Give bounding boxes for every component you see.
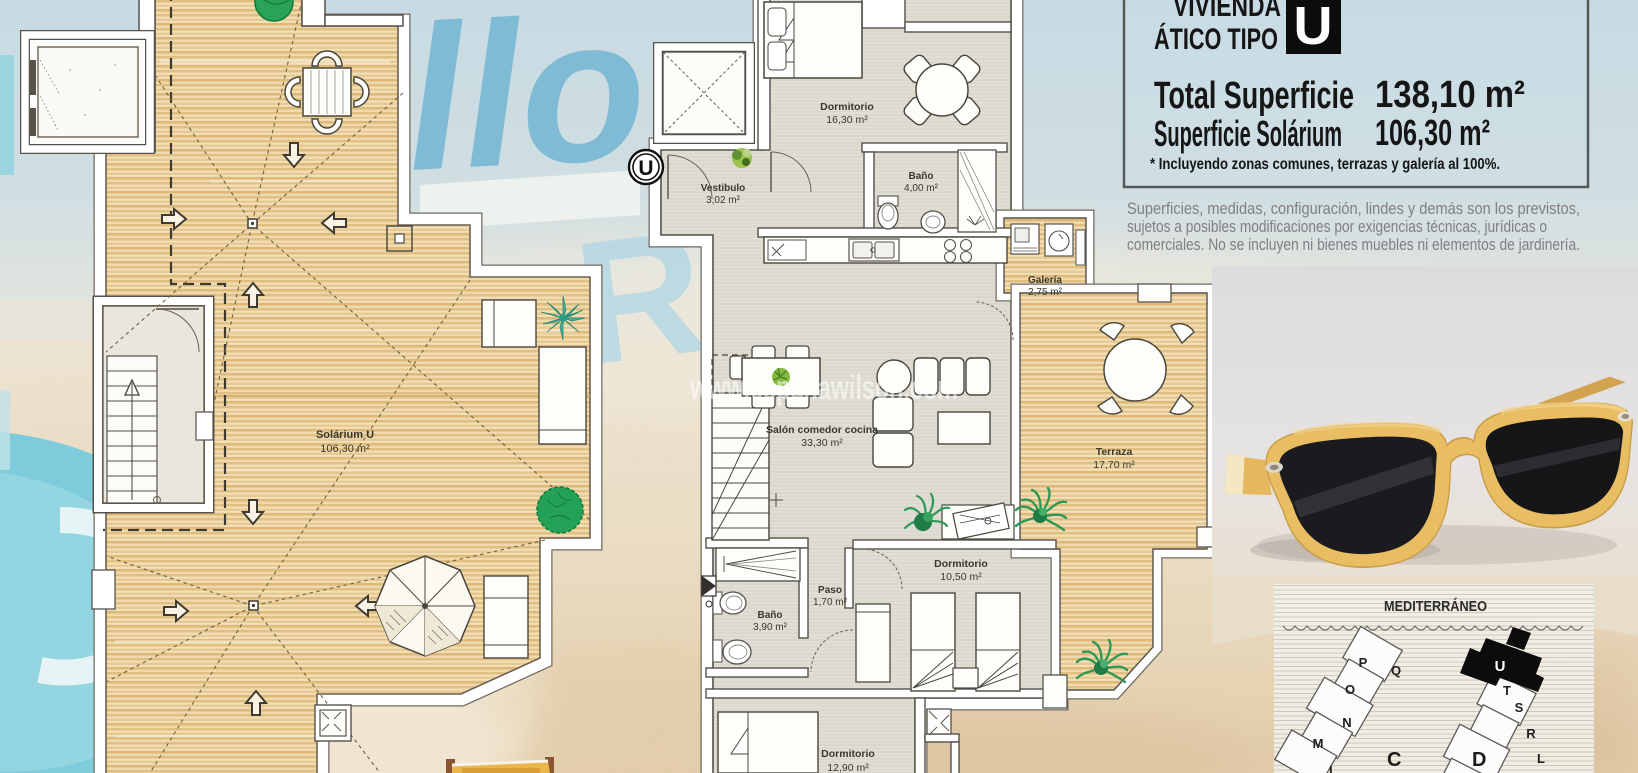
- svg-text:138,10 m²: 138,10 m²: [1375, 74, 1525, 116]
- svg-text:Salón comedor cocina: Salón comedor cocina: [766, 424, 878, 436]
- svg-text:T: T: [1503, 683, 1511, 698]
- svg-text:Vestibulo: Vestibulo: [701, 183, 745, 194]
- svg-text:Superficies, medidas, configur: Superficies, medidas, configuración, lin…: [1127, 200, 1580, 218]
- svg-text:S: S: [1515, 700, 1524, 715]
- svg-text:Baño: Baño: [758, 610, 783, 621]
- svg-text:Baño: Baño: [909, 171, 934, 182]
- svg-text:Q: Q: [1391, 663, 1401, 678]
- svg-text:N: N: [1342, 715, 1351, 730]
- svg-text:Galería: Galería: [1028, 275, 1062, 286]
- svg-text:Superficie Solárium: Superficie Solárium: [1154, 113, 1342, 154]
- svg-text:* Incluyendo zonas comunes, te: * Incluyendo zonas comunes, terrazas y g…: [1150, 156, 1500, 173]
- svg-text:17,70 m²: 17,70 m²: [1093, 459, 1135, 471]
- svg-text:P: P: [1359, 655, 1368, 670]
- svg-text:VIVIENDA: VIVIENDA: [1173, 0, 1281, 23]
- svg-text:L: L: [1537, 751, 1545, 766]
- svg-text:C: C: [1387, 749, 1401, 771]
- svg-text:1,70 m²: 1,70 m²: [813, 597, 848, 608]
- svg-text:2,75 m²: 2,75 m²: [1028, 287, 1063, 298]
- svg-text:M: M: [1313, 736, 1324, 751]
- svg-text:12,90 m²: 12,90 m²: [827, 762, 869, 773]
- svg-text:R: R: [1526, 726, 1536, 741]
- svg-text:10,50 m²: 10,50 m²: [940, 571, 982, 583]
- svg-text:Dormitorio: Dormitorio: [820, 101, 874, 113]
- svg-text:Solárium U: Solárium U: [316, 429, 374, 441]
- svg-text:O: O: [1345, 682, 1355, 697]
- svg-text:Paso: Paso: [818, 585, 842, 596]
- svg-text:L: L: [1329, 763, 1337, 773]
- svg-text:www.espanawilson.com: www.espanawilson.com: [689, 369, 958, 407]
- svg-text:Dormitorio: Dormitorio: [821, 748, 875, 760]
- svg-text:Terraza: Terraza: [1096, 446, 1133, 458]
- svg-text:4,00 m²: 4,00 m²: [904, 183, 939, 194]
- svg-text:U: U: [1495, 658, 1506, 675]
- svg-text:16,30 m²: 16,30 m²: [826, 114, 868, 126]
- svg-text:106,30 m²: 106,30 m²: [1375, 112, 1490, 153]
- svg-text:D: D: [1472, 749, 1486, 771]
- svg-text:U: U: [1294, 0, 1333, 56]
- svg-text:Total Superficie: Total Superficie: [1154, 75, 1354, 117]
- svg-text:Dormitorio: Dormitorio: [934, 558, 988, 570]
- svg-text:3,02 m²: 3,02 m²: [706, 195, 741, 206]
- svg-text:106,30 m²: 106,30 m²: [320, 443, 370, 455]
- svg-text:comerciales. No se incluyen ni: comerciales. No se incluyen ni bienes mu…: [1127, 236, 1580, 254]
- svg-text:33,30 m²: 33,30 m²: [801, 437, 843, 449]
- svg-text:U: U: [638, 157, 653, 180]
- svg-text:ÁTICO TIPO: ÁTICO TIPO: [1154, 22, 1278, 56]
- svg-text:3,90 m²: 3,90 m²: [753, 622, 788, 633]
- svg-text:sujetos a posibles modificacio: sujetos a posibles modificaciones por ex…: [1127, 218, 1547, 236]
- svg-text:MEDITERRÁNEO: MEDITERRÁNEO: [1384, 598, 1487, 615]
